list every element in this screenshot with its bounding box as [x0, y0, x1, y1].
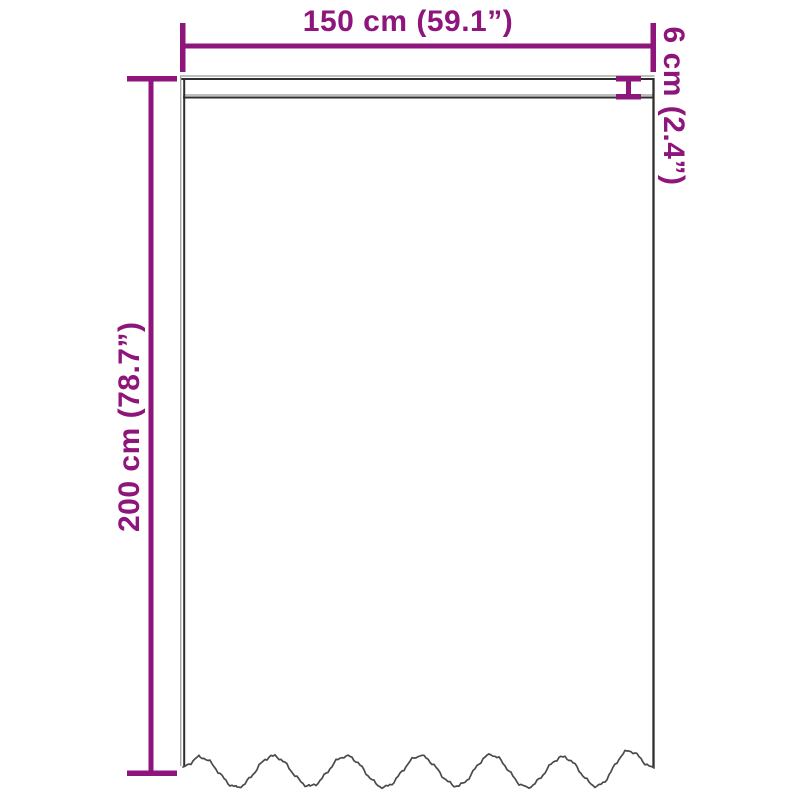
height-dimension-tick-bottom: [127, 771, 177, 777]
curtain-hem-wave: [183, 750, 654, 788]
height-dimension-line: [149, 77, 154, 774]
dimension-diagram: 150 cm (59.1”) 200 cm (78.7”) 6 cm (2.4”…: [0, 0, 800, 800]
height-dimension-tick-top: [127, 76, 177, 82]
header-bracket-stem: [626, 76, 631, 99]
header-dimension-label: 6 cm (2.4”): [654, 16, 690, 196]
height-dimension-label: 200 cm (78.7”): [113, 322, 149, 532]
width-dimension-label: 150 cm (59.1”): [182, 5, 634, 39]
width-dimension-line: [183, 44, 654, 49]
